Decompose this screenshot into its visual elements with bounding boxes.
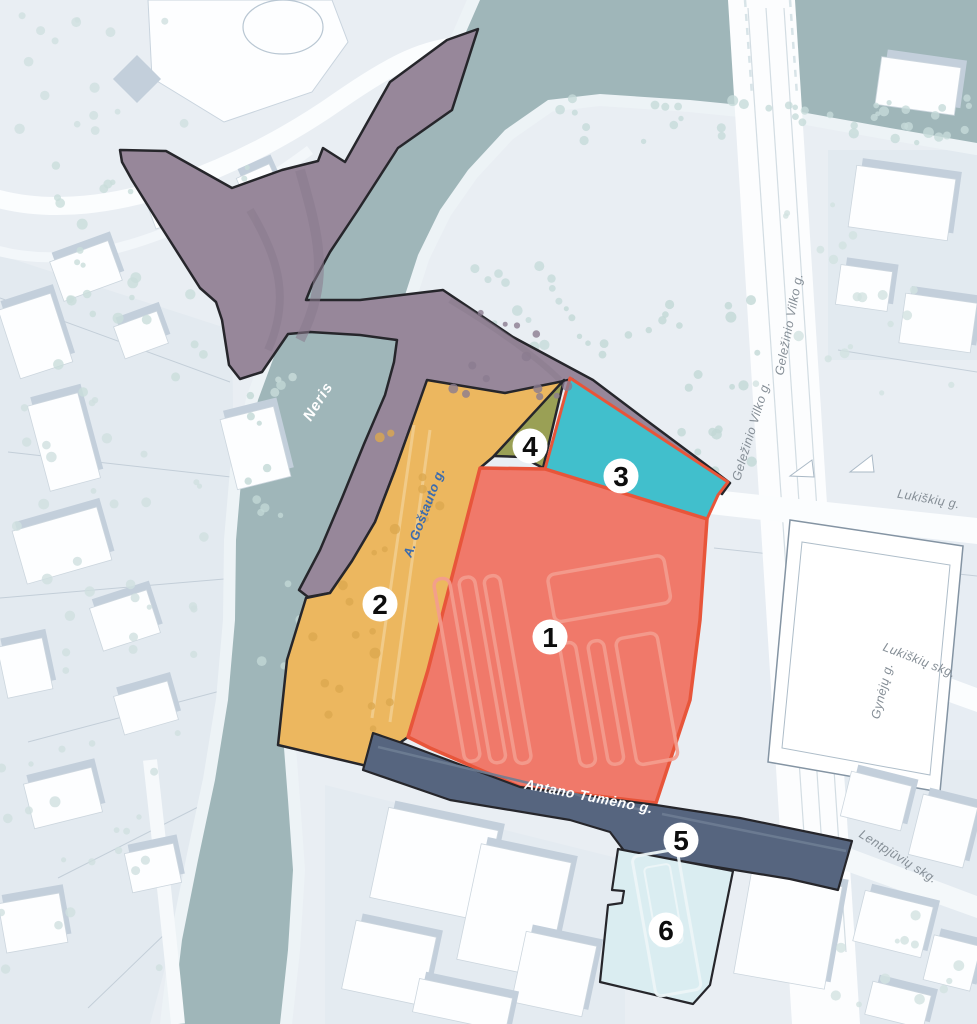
zone-5-marker-number: 5	[673, 825, 689, 856]
zone-3-marker-number: 3	[613, 461, 629, 492]
zone-6-marker-number: 6	[658, 915, 674, 946]
zone-1-marker: 1	[533, 620, 568, 655]
map-canvas: Neris A. Goštauto g. Geležinio Vilko g. …	[0, 0, 977, 1024]
zone-4-marker-number: 4	[522, 431, 538, 462]
zone-4-marker: 4	[513, 429, 548, 464]
site-plan-map: Neris A. Goštauto g. Geležinio Vilko g. …	[0, 0, 977, 1024]
zone-2-marker-number: 2	[372, 589, 388, 620]
zone-1-marker-number: 1	[542, 622, 558, 653]
zone-3-marker: 3	[604, 459, 639, 494]
zone-2-marker: 2	[363, 587, 398, 622]
zone-5-marker: 5	[664, 823, 699, 858]
zone-6-marker: 6	[649, 913, 684, 948]
